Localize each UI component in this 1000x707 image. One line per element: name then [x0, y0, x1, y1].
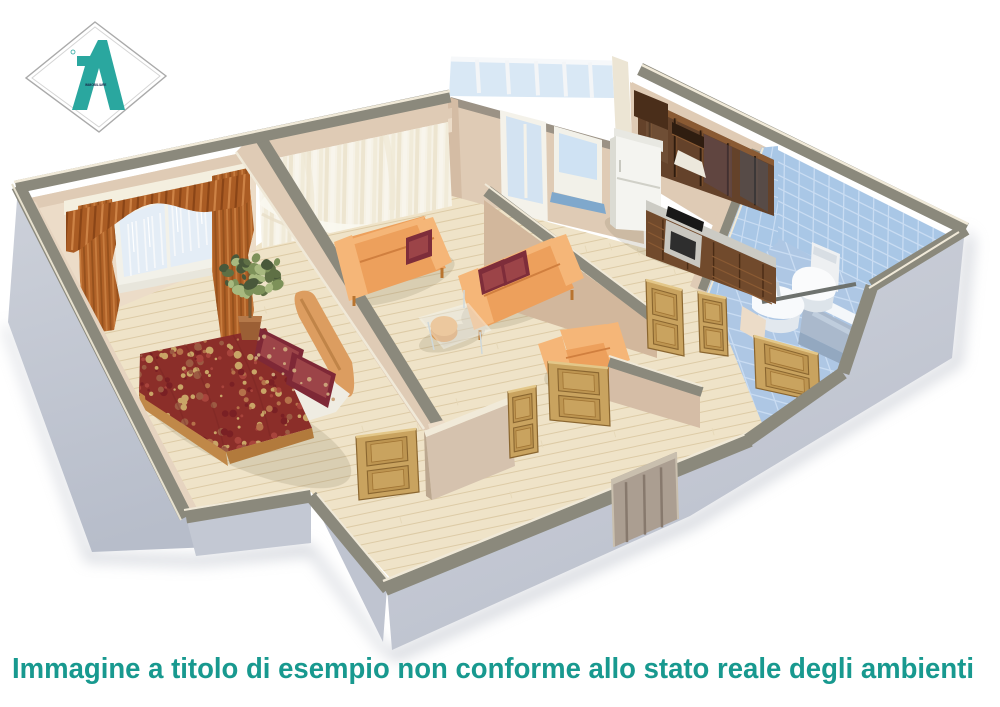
- svg-text:Immagine a titolo di esempio n: Immagine a titolo di esempio non conform…: [12, 653, 974, 685]
- svg-text:IMMOBILIARE: IMMOBILIARE: [85, 83, 106, 87]
